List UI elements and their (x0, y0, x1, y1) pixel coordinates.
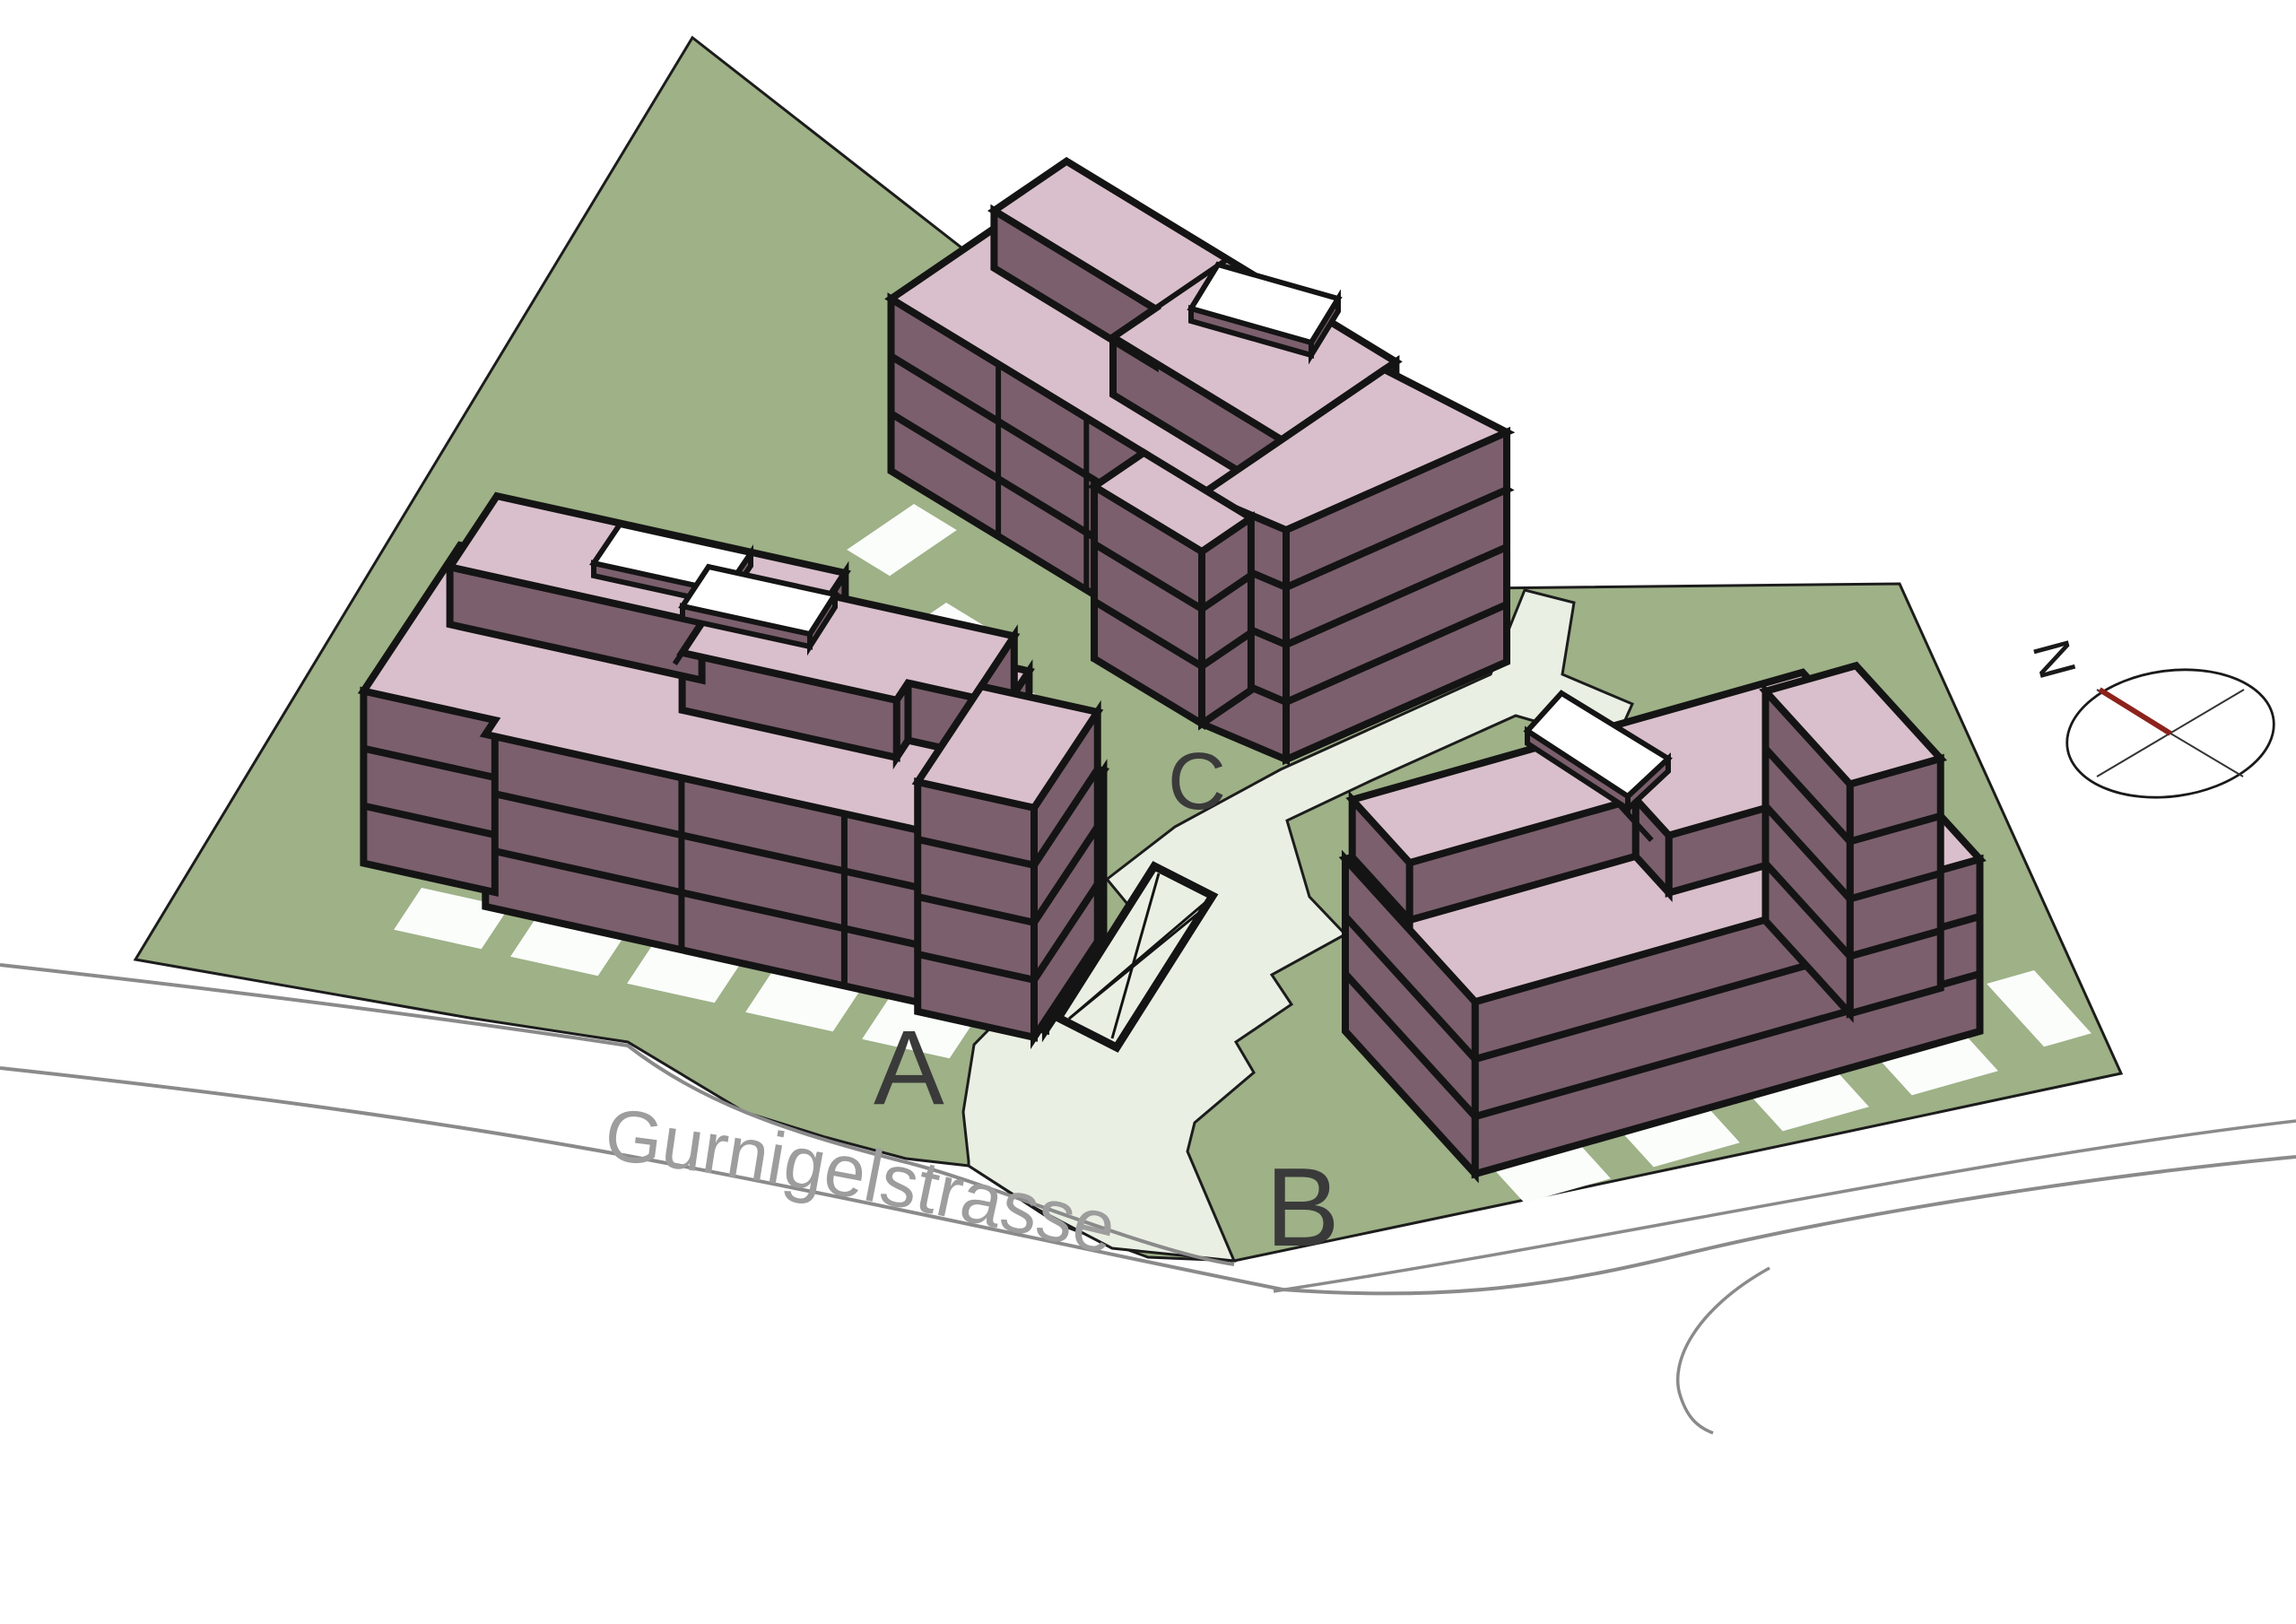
svg-text:B: B (1265, 1146, 1340, 1270)
svg-text:A: A (874, 1009, 944, 1127)
svg-text:C: C (1168, 737, 1226, 827)
